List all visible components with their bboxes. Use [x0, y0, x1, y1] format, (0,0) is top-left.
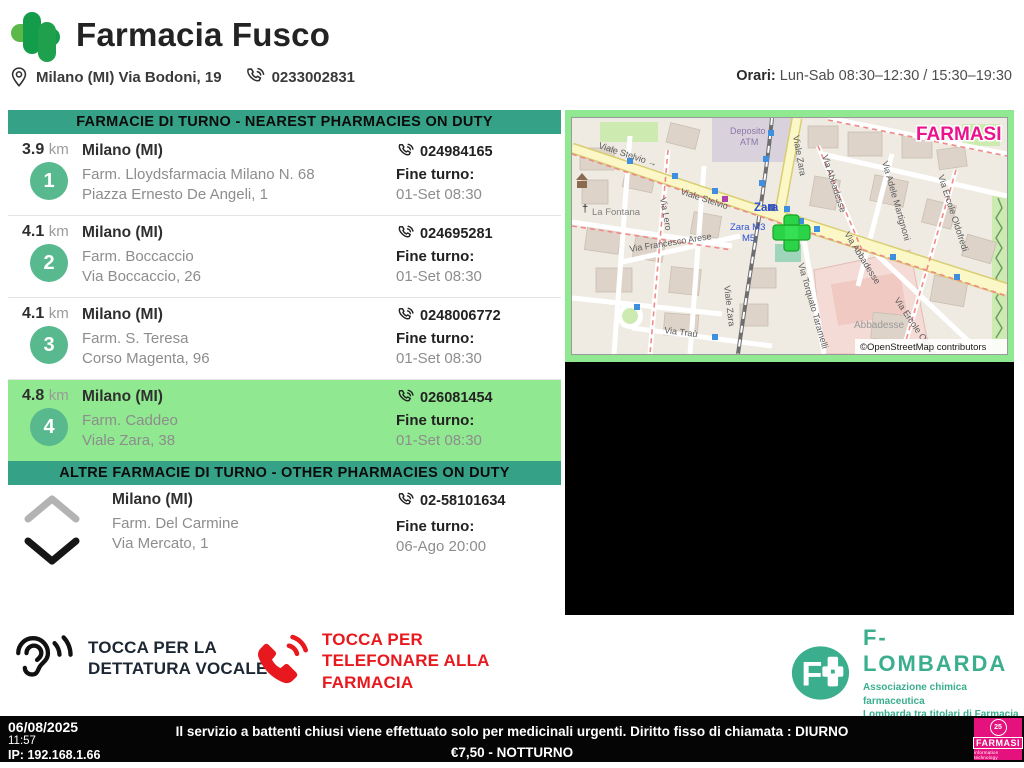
pharmacy-city: Milano (MI)	[82, 388, 178, 406]
current-time: 11:57	[8, 735, 100, 748]
fine-turno-label: Fine turno:	[396, 518, 561, 535]
distance: 3.9 km	[22, 141, 69, 159]
pharmacy-street: Via Mercato, 1	[112, 534, 239, 554]
phone-icon	[396, 142, 415, 161]
fine-turno-value: 01-Set 08:30	[396, 432, 556, 449]
pharmacy-city: Milano (MI)	[112, 491, 239, 509]
f-lombarda-name: F-LOMBARDA	[863, 625, 1024, 677]
ip-address: IP: 192.168.1.66	[8, 748, 100, 762]
distance: 4.1 km	[22, 305, 69, 323]
farmasi-name: FARMASI	[973, 737, 1023, 749]
fine-turno-label: Fine turno:	[396, 166, 556, 183]
map-attribution: ©OpenStreetMap contributors	[860, 342, 987, 353]
f-lombarda-icon: F	[790, 642, 851, 704]
pharmacy-phone: 0248006772	[420, 308, 501, 324]
pharmacy-row[interactable]: 3.9 km 1 Milano (MI) Farm. Lloydsfarmaci…	[8, 134, 561, 216]
pharmacy-street: Via Boccaccio, 26	[82, 267, 201, 287]
service-notice: Il servizio a battenti chiusi viene effe…	[162, 722, 862, 768]
farmasi-watermark: FARMASI	[916, 124, 1002, 145]
pharmacy-name: Farm. Del Carmine	[112, 514, 239, 534]
fine-turno-value: 01-Set 08:30	[396, 186, 556, 203]
fine-turno-value: 01-Set 08:30	[396, 350, 556, 367]
rank-badge: 2	[30, 244, 68, 282]
system-info: 06/08/2025 11:57 IP: 192.168.1.66	[8, 719, 100, 763]
status-bar: 06/08/2025 11:57 IP: 192.168.1.66 Il ser…	[0, 716, 1024, 762]
farmasi-logo: 25 FARMASI information technology	[974, 718, 1022, 760]
map-area-label: Deposito	[730, 126, 766, 136]
rank-badge: 1	[30, 162, 68, 200]
other-banner: ALTRE FARMACIE DI TURNO - OTHER PHARMACI…	[8, 461, 561, 485]
fine-turno-label: Fine turno:	[396, 412, 556, 429]
call-pharmacy-button[interactable]: TOCCA PERTELEFONARE ALLAFARMACIA	[252, 629, 490, 693]
pharmacy-city: Milano (MI)	[82, 306, 210, 324]
metro-line-label: Zara M3	[730, 222, 765, 233]
video-panel	[565, 362, 1014, 615]
phone-icon	[396, 388, 415, 407]
pharmacy-name: Farm. Lloydsfarmacia Milano N. 68	[82, 165, 315, 185]
pharmacy-row[interactable]: 4.1 km 3 Milano (MI) Farm. S. Teresa Cor…	[8, 298, 561, 380]
pharmacy-street: Viale Zara, 38	[82, 431, 178, 451]
phone-icon	[244, 66, 266, 88]
map-area-label: ATM	[740, 137, 758, 147]
current-date: 06/08/2025	[8, 719, 100, 735]
pharmacy-name: Farm. Boccaccio	[82, 247, 201, 267]
header-brand: Farmacia Fusco	[8, 6, 330, 64]
pharmacy-street: Corso Magenta, 96	[82, 349, 210, 369]
red-phone-icon	[252, 632, 310, 690]
svg-text:F: F	[801, 656, 822, 694]
phone-icon	[396, 224, 415, 243]
map-area-label: La Fontana	[592, 207, 641, 218]
voice-dictation-button[interactable]: TOCCA PER LADETTATURA VOCALE	[10, 627, 267, 689]
subheader: Milano (MI) Via Bodoni, 19 0233002831 Or…	[8, 66, 1014, 92]
pharmacy-name: Farm. Caddeo	[82, 411, 178, 431]
pharmacy-name: Farm. S. Teresa	[82, 329, 210, 349]
pharmacy-phone: 0233002831	[272, 69, 355, 86]
distance: 4.8 km	[22, 387, 69, 405]
scroll-up-button[interactable]	[22, 493, 82, 525]
call-pharmacy-label: TOCCA PERTELEFONARE ALLAFARMACIA	[322, 629, 490, 693]
farmasi-subtitle: information technology	[974, 750, 1022, 760]
fine-turno-label: Fine turno:	[396, 330, 556, 347]
pharmacy-address: Milano (MI) Via Bodoni, 19	[36, 69, 222, 86]
pharmacy-cross-logo-icon	[8, 6, 64, 64]
pharmacy-phone: 024695281	[420, 226, 493, 242]
nearest-banner: FARMACIE DI TURNO - NEAREST PHARMACIES O…	[8, 110, 561, 134]
ear-icon	[10, 627, 76, 689]
kiosk-screen: Farmacia Fusco Milano (MI) Via Bodoni, 1…	[0, 0, 1024, 768]
distance: 4.1 km	[22, 223, 69, 241]
voice-dictation-label: TOCCA PER LADETTATURA VOCALE	[88, 637, 267, 680]
map-area-label: Abbadesse	[854, 320, 904, 331]
metro-line-label: M5	[742, 233, 755, 244]
fine-turno-label: Fine turno:	[396, 248, 556, 265]
fine-turno-value: 06-Ago 20:00	[396, 538, 561, 555]
f-lombarda-logo: F F-LOMBARDA Associazione chimica farmac…	[790, 625, 1024, 722]
chevron-up-icon	[22, 493, 82, 525]
map-panel: Viale Stelvio → Viale Stelvio Viale Zara…	[565, 110, 1014, 362]
opening-hours: Orari: Lun-Sab 08:30–12:30 / 15:30–19:30	[736, 68, 1012, 84]
pharmacy-list-panel: FARMACIE DI TURNO - NEAREST PHARMACIES O…	[8, 110, 561, 580]
phone-icon	[396, 491, 415, 510]
chevron-down-icon	[22, 535, 82, 567]
pharmacy-street: Piazza Ernesto De Angeli, 1	[82, 185, 315, 205]
location-pin-icon	[8, 66, 30, 88]
scroll-down-button[interactable]	[22, 535, 82, 567]
rank-badge: 3	[30, 326, 68, 364]
pharmacy-phone: 026081454	[420, 390, 493, 406]
pharmacy-phone: 02-58101634	[420, 493, 505, 509]
other-pharmacy-row: Milano (MI) Farm. Del Carmine Via Mercat…	[8, 485, 561, 580]
phone-icon	[396, 306, 415, 325]
farmasi-25-badge: 25	[990, 719, 1007, 736]
fine-turno-value: 01-Set 08:30	[396, 268, 556, 285]
church-icon: †	[582, 203, 588, 215]
pharmacy-city: Milano (MI)	[82, 142, 315, 160]
metro-station-label: Zara	[754, 202, 779, 214]
pharmacy-row-selected[interactable]: 4.8 km 4 Milano (MI) Farm. Caddeo Viale …	[8, 380, 561, 461]
pharmacy-row[interactable]: 4.1 km 2 Milano (MI) Farm. Boccaccio Via…	[8, 216, 561, 298]
pharmacy-city: Milano (MI)	[82, 224, 201, 242]
page-title: Farmacia Fusco	[76, 16, 330, 54]
street-map: Viale Stelvio → Viale Stelvio Viale Zara…	[571, 117, 1008, 355]
pharmacy-phone: 024984165	[420, 144, 493, 160]
rank-badge: 4	[30, 408, 68, 446]
